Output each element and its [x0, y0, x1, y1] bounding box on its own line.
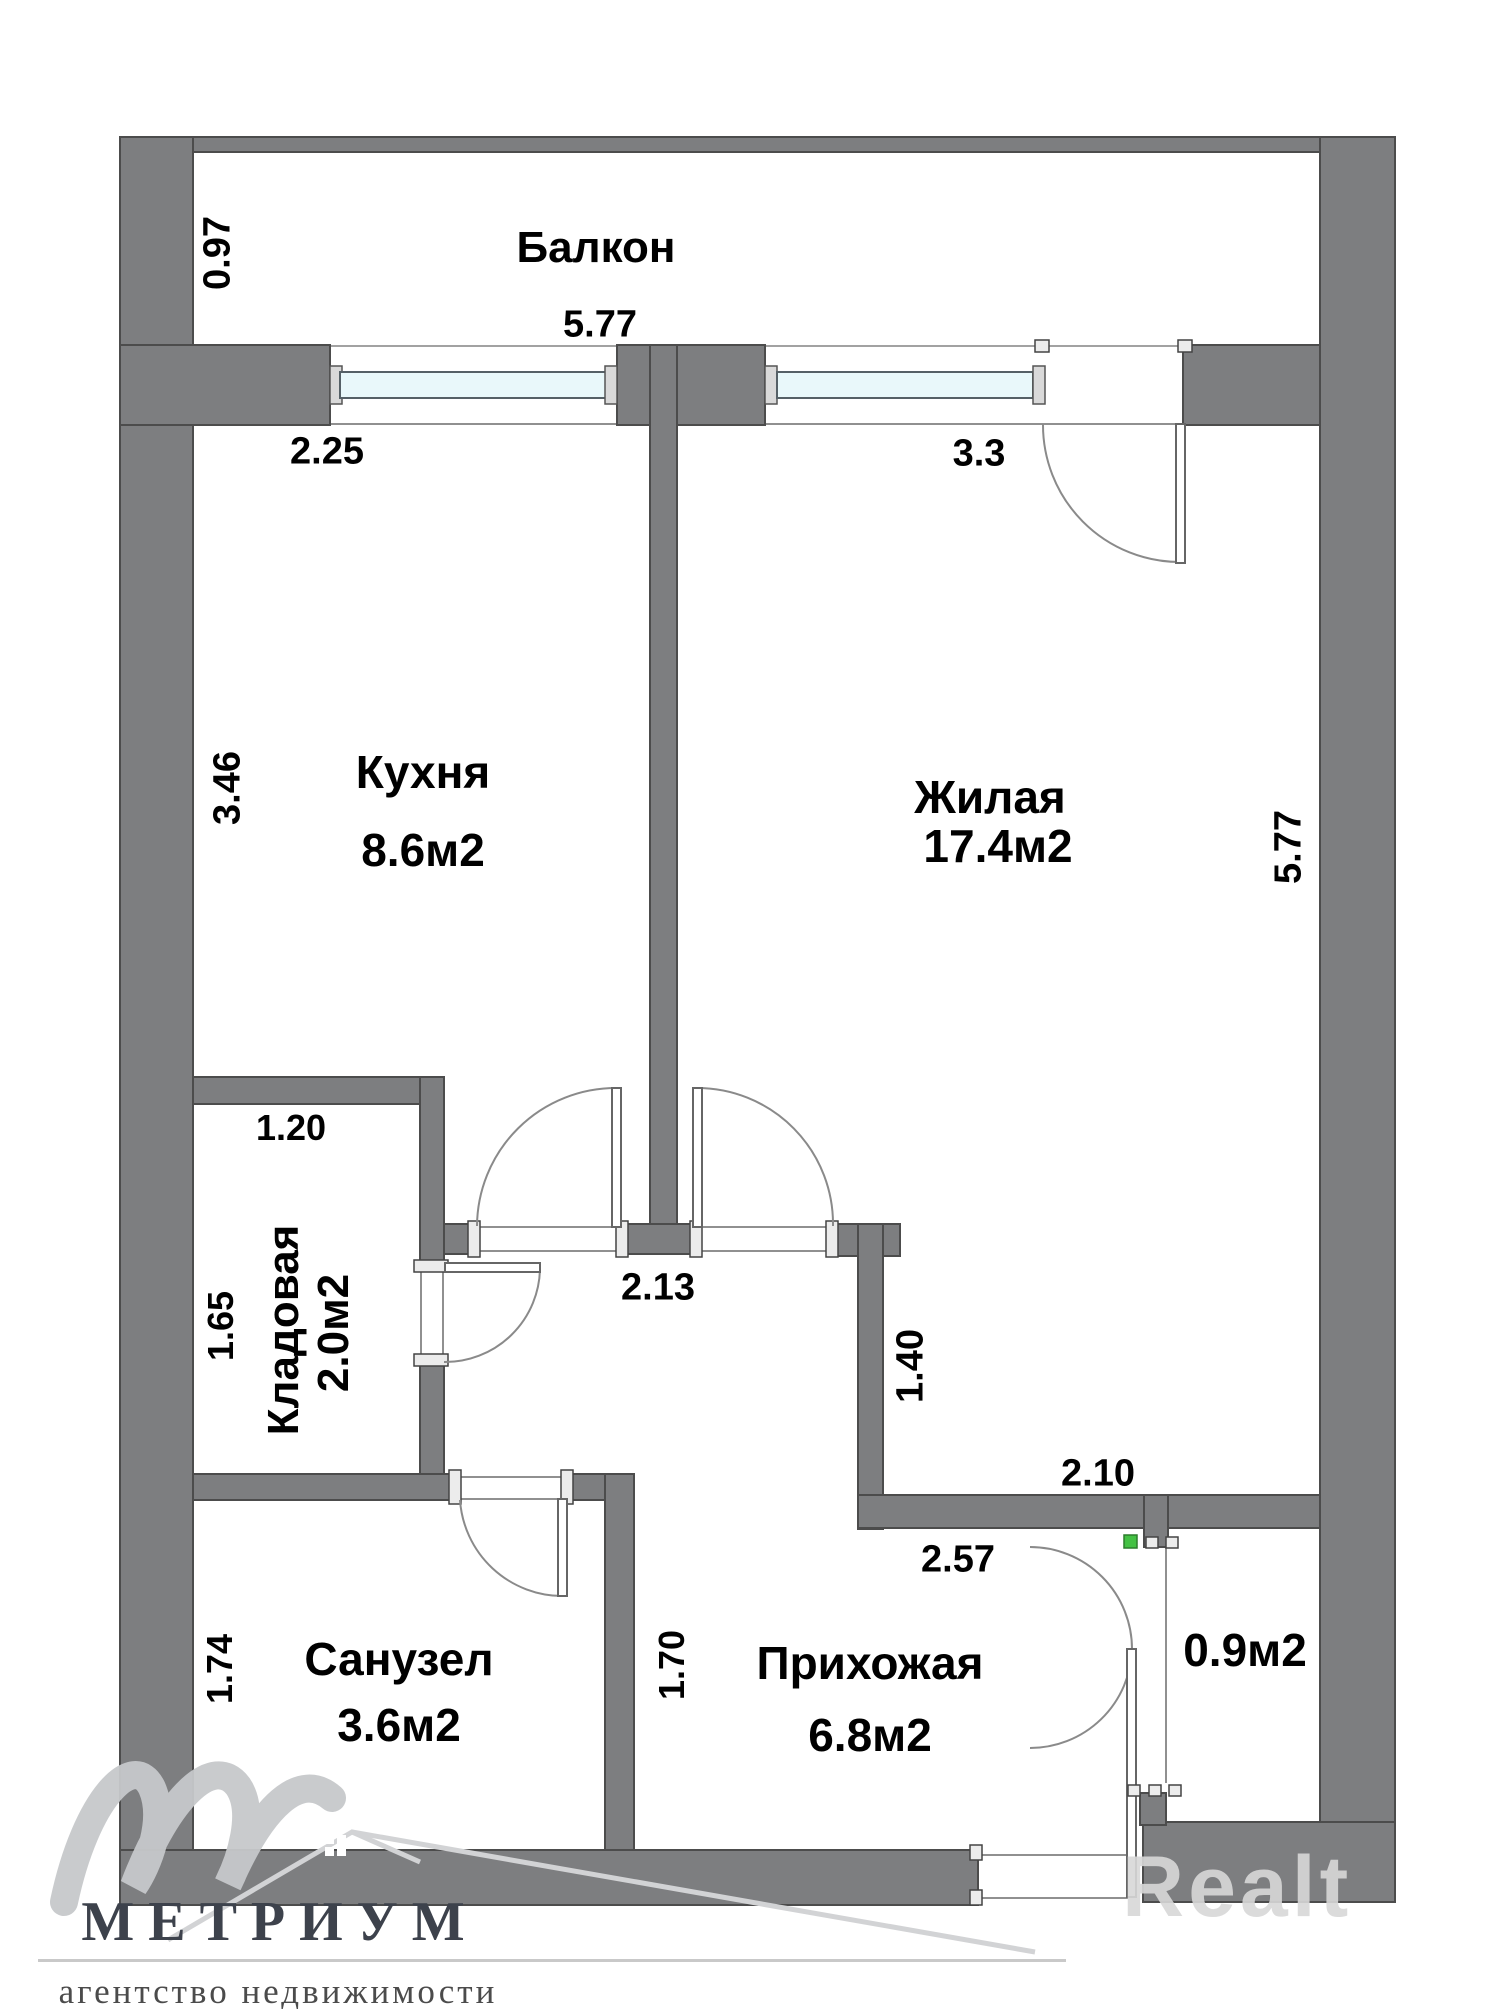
dim-hall-width: 2.57	[921, 1539, 995, 1582]
vestibule-bracket-bottom-1	[1128, 1785, 1140, 1796]
room-area-vestibule: 0.9м2	[1183, 1623, 1307, 1677]
room-label-storage: Кладовая	[259, 1225, 309, 1436]
kitchen-door-arc	[477, 1088, 616, 1226]
balcony-door-leaf	[1176, 424, 1185, 563]
entry-marker-green	[1124, 1535, 1137, 1548]
room-area-bathroom: 3.6м2	[337, 1698, 461, 1752]
room-label-kitchen: Кухня	[356, 745, 490, 799]
realt-watermark: Realt	[1122, 1838, 1352, 1937]
wall-bathroom-top-left	[193, 1474, 457, 1500]
wall-living-lower-left	[858, 1224, 883, 1529]
kitchen-window-jamb-right	[605, 366, 617, 404]
agency-logo-subtitle: агентство недвижимости	[59, 1972, 498, 2009]
bathroom-door-bracket-left	[449, 1470, 461, 1504]
dim-balcony-length: 5.77	[563, 304, 637, 347]
dim-hall-upper-wall: 2.10	[1061, 1453, 1135, 1496]
room-area-kitchen: 8.6м2	[361, 823, 485, 877]
entry-door-arc-lower	[1030, 1649, 1132, 1748]
wall-bathroom-right	[605, 1474, 634, 1852]
balcony-door-bracket-right	[1178, 340, 1192, 352]
wall-storage-right-lower	[420, 1362, 444, 1476]
wall-window-band-middle	[617, 345, 765, 425]
entry-gap-bracket-top	[970, 1845, 982, 1860]
living-door-leaf	[693, 1088, 702, 1227]
agency-logo-divider	[38, 1959, 1066, 1962]
dim-bathroom-depth: 1.74	[199, 1634, 241, 1704]
room-label-living: Жилая	[914, 770, 1066, 824]
floor-plan-geometry	[0, 0, 1500, 2009]
wall-window-band-right	[1183, 345, 1320, 425]
balcony-interior-outline	[193, 152, 1320, 346]
storage-door-bracket-bottom	[414, 1354, 448, 1366]
wall-hall-top	[858, 1495, 1320, 1528]
dim-living-window-wall: 3.3	[953, 433, 1006, 476]
room-area-hallway: 6.8м2	[808, 1708, 932, 1762]
room-label-bathroom: Санузел	[304, 1632, 493, 1686]
storage-door-arc	[444, 1268, 540, 1362]
dim-living-length: 5.77	[1268, 810, 1311, 884]
wall-vestibule-stub-bottom	[1140, 1793, 1166, 1825]
dim-storage-depth: 1.65	[200, 1291, 242, 1361]
floor-plan: Балкон Кухня 8.6м2 Жилая 17.4м2 Кладовая…	[0, 0, 1500, 2009]
kitchen-door-bracket-left	[468, 1221, 480, 1257]
room-area-living: 17.4м2	[923, 819, 1072, 873]
living-window-jamb-right	[1033, 366, 1045, 404]
balcony-door-bracket-left	[1035, 340, 1049, 352]
dim-hall-left-wall: 1.70	[651, 1630, 693, 1700]
dim-living-lower-wall: 1.40	[890, 1329, 933, 1403]
room-area-storage: 2.0м2	[309, 1274, 359, 1392]
agency-logo-title: МЕТРИУМ	[81, 1890, 478, 1954]
kitchen-door-leaf	[612, 1088, 621, 1227]
wall-window-band-left	[120, 345, 330, 425]
vestibule-bracket-bottom-2	[1149, 1785, 1161, 1796]
wall-kitchen-living-divider	[650, 345, 677, 1230]
room-label-hallway: Прихожая	[757, 1636, 984, 1690]
dim-kitchen-window: 2.25	[290, 431, 364, 474]
living-door-arc	[697, 1088, 833, 1226]
entry-gap-bracket-bottom	[970, 1890, 982, 1905]
bathroom-door-arc	[460, 1500, 563, 1596]
wall-divider-foot	[620, 1224, 692, 1254]
entry-door-arc-upper	[1030, 1547, 1132, 1649]
kitchen-window-glass	[340, 372, 607, 398]
dim-corridor-opening: 2.13	[621, 1267, 695, 1310]
wall-storage-top	[193, 1077, 444, 1104]
dim-kitchen-depth: 3.46	[207, 751, 250, 825]
wall-storage-right-upper	[420, 1077, 444, 1269]
vestibule-bracket-bottom-3	[1169, 1785, 1181, 1796]
dim-storage-width: 1.20	[256, 1107, 326, 1149]
wall-right	[1320, 137, 1395, 1902]
storage-door-leaf	[445, 1263, 540, 1272]
bathroom-door-leaf	[558, 1499, 567, 1596]
living-window-jamb-left	[765, 366, 777, 404]
living-door-bracket-right	[826, 1221, 838, 1257]
storage-door-bracket-top	[414, 1260, 448, 1272]
room-label-balcony: Балкон	[517, 223, 676, 273]
wall-top	[120, 137, 1395, 152]
living-window-glass	[777, 372, 1033, 398]
balcony-door-arc	[1043, 424, 1180, 562]
vestibule-bracket-top-2	[1166, 1537, 1178, 1548]
vestibule-bracket-top-1	[1146, 1537, 1158, 1548]
dim-balcony-depth: 0.97	[197, 216, 240, 290]
